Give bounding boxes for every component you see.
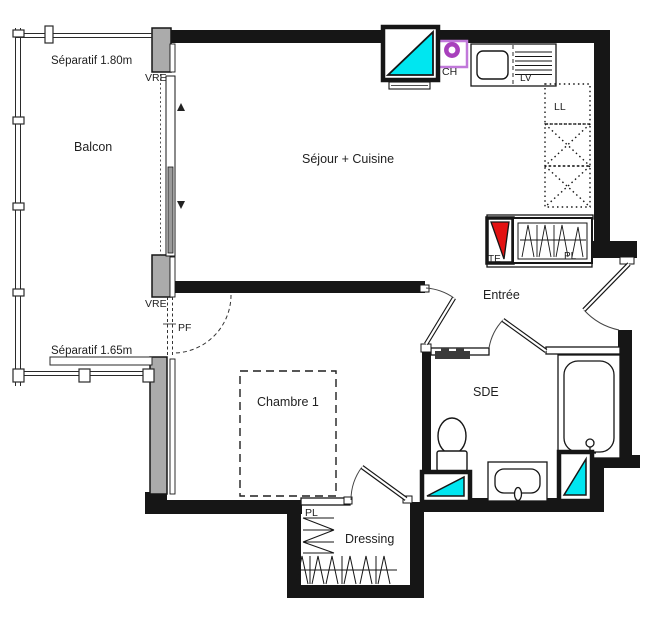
window-opening-arrow-down	[177, 201, 185, 209]
balcony-separator-panel	[50, 357, 152, 365]
window-opening-arrow-up	[177, 103, 185, 111]
label-pl-entree: PL	[564, 251, 577, 262]
floor-plan-drawing: Séparatif 1.80m Balcon Séjour + Cuisine …	[0, 0, 648, 622]
label-ch: CH	[442, 66, 457, 78]
wall-sejour-chambre	[174, 281, 425, 293]
room-label-entree: Entrée	[483, 288, 520, 302]
bathtub	[558, 355, 620, 459]
room-label-balcon: Balcon	[74, 140, 112, 154]
room-label-dressing: Dressing	[345, 532, 394, 546]
bay-window	[161, 74, 186, 256]
dressing-closet	[292, 518, 397, 584]
bed-outline	[240, 371, 336, 496]
shelf-unit	[303, 518, 334, 553]
label-separatif-haut: Séparatif 1.80m	[51, 55, 132, 67]
entrance-door-arc	[584, 310, 619, 330]
wall-right-upper	[594, 30, 610, 249]
wall-entry-stub	[593, 241, 637, 258]
window-sash	[168, 167, 173, 253]
french-door-pf	[163, 295, 231, 355]
sde-door-arc	[489, 320, 503, 348]
balcony-railing	[14, 28, 152, 386]
duct-sejour	[383, 27, 438, 89]
duct-sde-left	[422, 472, 470, 502]
room-label-chambre: Chambre 1	[257, 395, 319, 409]
separator-panel-bottom	[50, 357, 152, 365]
kitchen-sink	[477, 51, 508, 79]
wall-dressing-right	[410, 502, 424, 598]
wall-sde-top-right	[546, 347, 620, 354]
duct-sde-right	[559, 452, 592, 501]
label-pl-dressing: PL	[305, 507, 318, 519]
railing-posts	[13, 26, 154, 382]
radiator-sde	[435, 351, 470, 359]
pier-vre-mid	[152, 255, 171, 297]
floor-plan: Séparatif 1.80m Balcon Séjour + Cuisine …	[0, 0, 648, 622]
kitchen	[471, 44, 590, 207]
wall-dressing-top	[301, 498, 350, 505]
walls	[145, 30, 640, 598]
label-vre-haut: VRE	[145, 72, 167, 84]
washing-machine-ll	[545, 84, 590, 124]
boiler-ch	[437, 41, 467, 67]
entry-closet	[487, 218, 592, 263]
sde-fixtures	[422, 348, 620, 509]
wall-dressing-bottom	[287, 585, 424, 598]
dressing-door-arc	[351, 467, 362, 500]
room-label-sde: SDE	[473, 385, 499, 399]
label-ll: LL	[554, 101, 566, 113]
bedroom-door-arc	[426, 288, 454, 298]
appliance-reservations	[545, 84, 590, 207]
room-label-sejour-cuisine: Séjour + Cuisine	[302, 152, 394, 166]
wall-dressing-left	[287, 502, 301, 598]
pier-vre-top	[152, 28, 171, 72]
label-separatif-bas: Séparatif 1.65m	[51, 345, 132, 357]
wall-chambre-bottom	[160, 500, 302, 514]
label-pf: PF	[178, 322, 191, 334]
label-vre-milieu: VRE	[145, 298, 167, 310]
label-te: TE	[488, 254, 501, 265]
label-lv: LV	[520, 73, 532, 84]
toilet	[437, 418, 467, 471]
